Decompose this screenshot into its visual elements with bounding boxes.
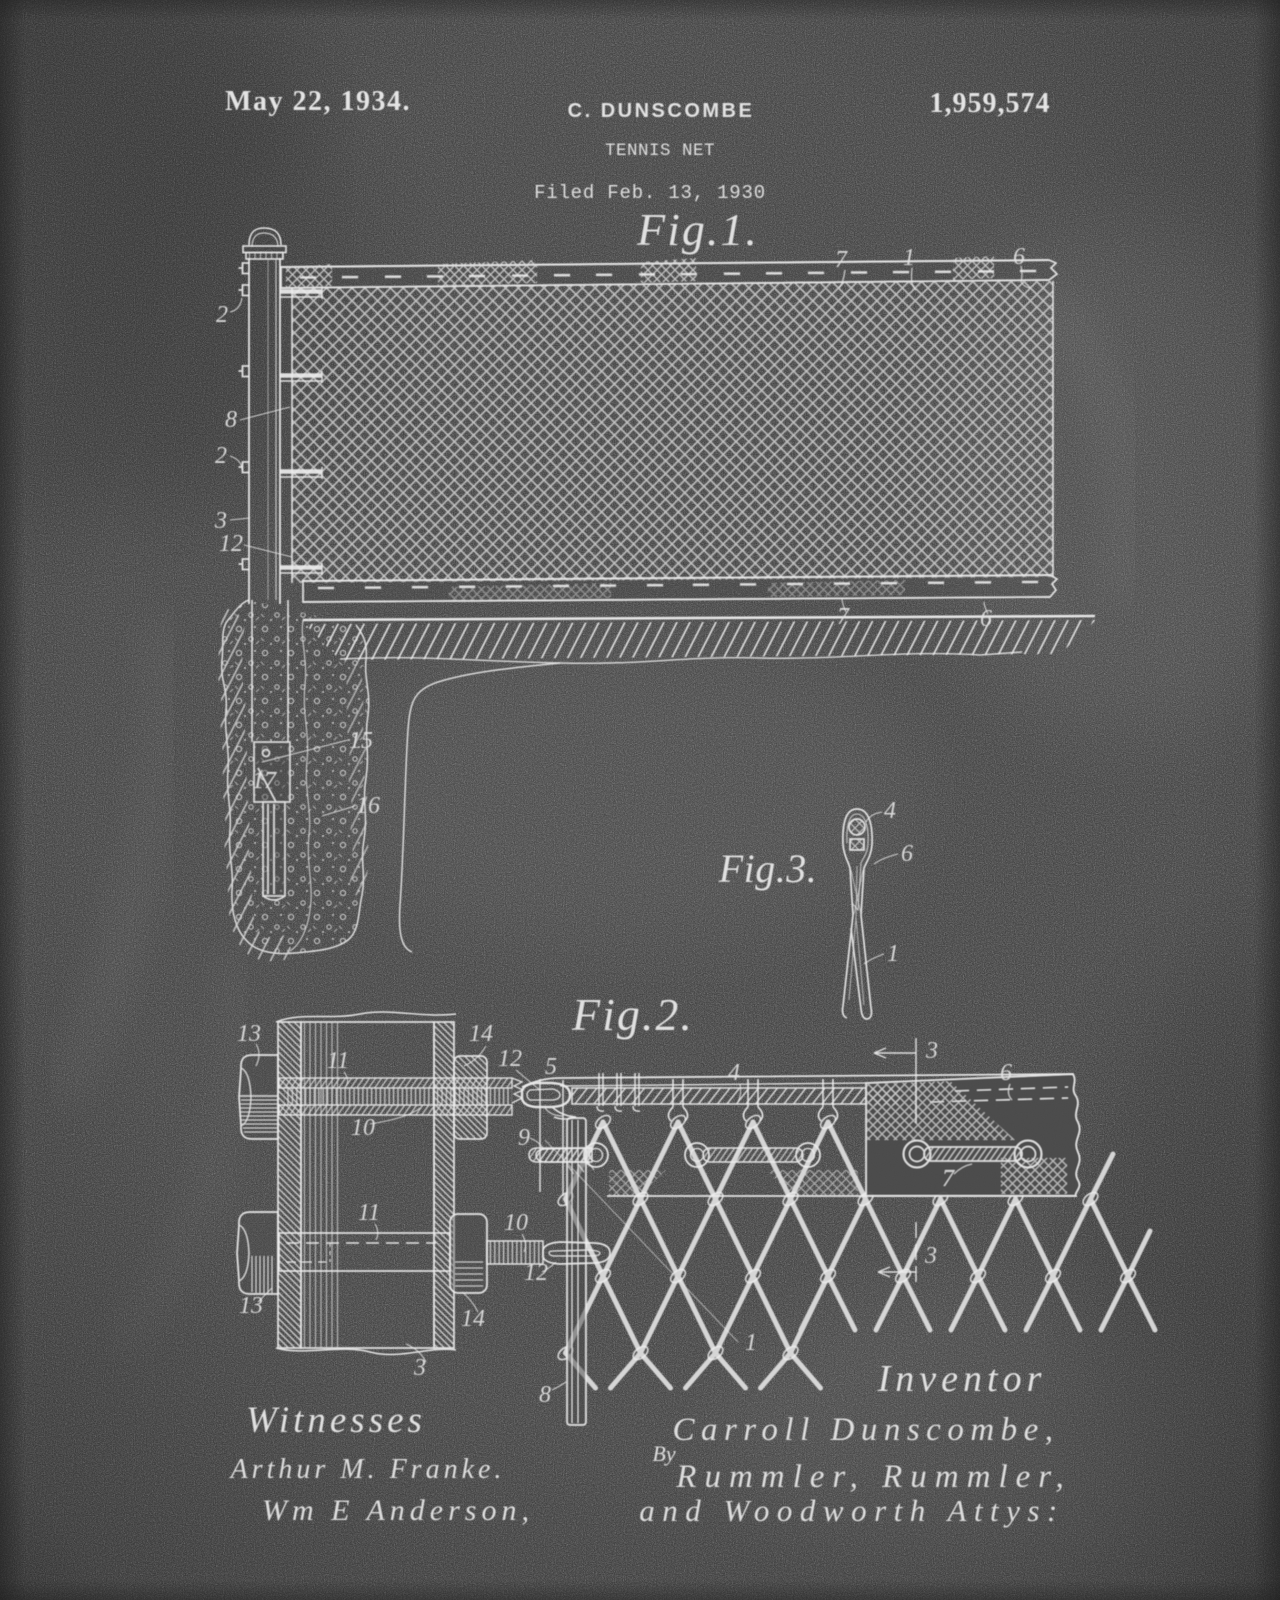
svg-text:and Woodworth Attys:: and Woodworth Attys: <box>639 1493 1065 1528</box>
svg-text:15: 15 <box>349 728 373 754</box>
svg-text:6: 6 <box>901 841 913 867</box>
svg-text:1,959,574: 1,959,574 <box>930 88 1051 119</box>
svg-text:Carroll Dunscombe,: Carroll Dunscombe, <box>672 1412 1059 1448</box>
svg-text:12: 12 <box>498 1046 522 1072</box>
svg-text:7: 7 <box>835 247 848 273</box>
svg-text:1: 1 <box>745 1330 757 1356</box>
svg-text:11: 11 <box>358 1200 380 1226</box>
svg-text:12: 12 <box>524 1260 548 1286</box>
svg-text:8: 8 <box>539 1382 551 1408</box>
svg-text:Rummler, Rummler,: Rummler, Rummler, <box>675 1459 1071 1495</box>
svg-text:May 22, 1934.: May 22, 1934. <box>225 86 411 117</box>
svg-text:14: 14 <box>469 1021 493 1047</box>
svg-text:16: 16 <box>356 793 380 819</box>
svg-text:TENNIS NET: TENNIS NET <box>605 141 715 161</box>
svg-text:3: 3 <box>925 1038 938 1064</box>
svg-text:12: 12 <box>219 531 243 557</box>
svg-text:Fig.3.: Fig.3. <box>718 846 818 891</box>
svg-text:6: 6 <box>1000 1060 1012 1086</box>
svg-text:9: 9 <box>518 1125 530 1151</box>
svg-text:8: 8 <box>225 407 237 433</box>
svg-text:4: 4 <box>728 1060 740 1086</box>
svg-text:1: 1 <box>903 245 915 271</box>
svg-text:Witnesses: Witnesses <box>246 1400 426 1441</box>
svg-text:Filed Feb. 13, 1930: Filed Feb. 13, 1930 <box>534 182 766 204</box>
svg-text:13: 13 <box>239 1293 263 1319</box>
svg-text:2: 2 <box>216 302 228 328</box>
svg-text:By: By <box>652 1441 675 1466</box>
svg-text:10: 10 <box>351 1115 375 1141</box>
svg-text:3: 3 <box>924 1243 937 1269</box>
svg-text:Fig.2.: Fig.2. <box>571 989 694 1040</box>
svg-text:7: 7 <box>942 1166 955 1192</box>
svg-text:Arthur M. Franke.: Arthur M. Franke. <box>229 1454 506 1485</box>
svg-text:C. DUNSCOMBE: C. DUNSCOMBE <box>568 100 755 122</box>
svg-text:4: 4 <box>884 798 896 824</box>
svg-text:Inventor: Inventor <box>877 1358 1047 1400</box>
svg-text:5: 5 <box>545 1054 557 1080</box>
svg-text:13: 13 <box>237 1021 261 1047</box>
svg-text:14: 14 <box>461 1306 485 1332</box>
svg-text:17: 17 <box>252 768 277 794</box>
svg-text:2: 2 <box>215 443 227 469</box>
svg-text:6: 6 <box>1013 244 1025 270</box>
svg-text:10: 10 <box>504 1210 528 1236</box>
svg-text:Wm E Anderson,: Wm E Anderson, <box>262 1494 534 1527</box>
svg-text:1: 1 <box>887 941 899 967</box>
svg-text:11: 11 <box>327 1048 349 1074</box>
svg-text:7: 7 <box>837 604 850 630</box>
svg-text:Fig.1.: Fig.1. <box>636 204 759 255</box>
